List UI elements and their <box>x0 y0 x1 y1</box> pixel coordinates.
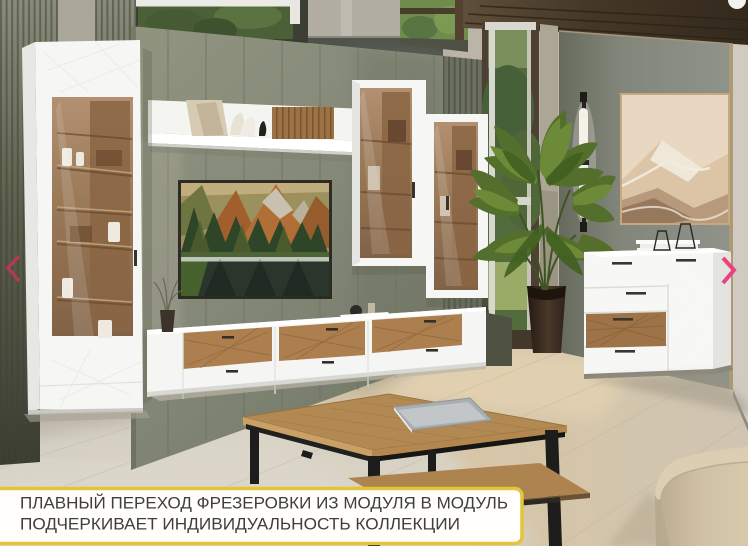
svg-text:ПЛАВНЫЙ ПЕРЕХОД ФРЕЗЕРОВКИ ИЗ: ПЛАВНЫЙ ПЕРЕХОД ФРЕЗЕРОВКИ ИЗ МОДУЛЯ В М… <box>20 494 508 513</box>
svg-text:ПОДЧЕРКИВАЕТ ИНДИВИДУАЛЬНОСТЬ: ПОДЧЕРКИВАЕТ ИНДИВИДУАЛЬНОСТЬ КОЛЛЕКЦИИ <box>20 515 460 534</box>
